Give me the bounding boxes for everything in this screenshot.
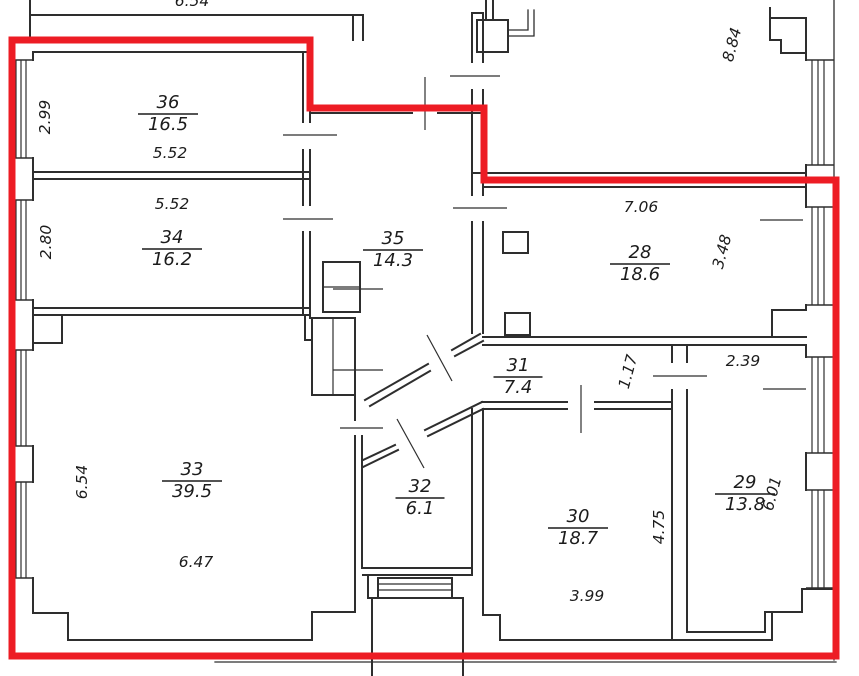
dimension-label-10: 4.75: [650, 510, 668, 545]
door-opening-tick: [397, 419, 424, 468]
dimension-label-4: 8.84: [719, 26, 745, 64]
room-number-35: 35: [382, 228, 405, 249]
dimension-label-3: 2.80: [37, 225, 55, 260]
room-area-34: 16.2: [152, 249, 192, 270]
room-number-31: 31: [507, 355, 530, 376]
room-area-32: 6.1: [406, 498, 435, 519]
door-opening-tick: [427, 335, 452, 381]
room-number-33: 33: [181, 459, 204, 480]
room-number-29: 29: [734, 472, 757, 493]
structure-box: [477, 20, 508, 52]
red-selection-outline: [12, 40, 836, 656]
wall-line: [363, 445, 395, 460]
wall-line: [455, 341, 483, 356]
room-area-35: 14.3: [373, 250, 413, 271]
wall-line: [425, 402, 482, 430]
floor-plan-svg: 3616.53416.23514.32818.6317.4326.13339.5…: [0, 0, 859, 676]
room-number-32: 32: [409, 476, 432, 497]
wall-line: [508, 10, 534, 36]
room-area-30: 18.7: [558, 528, 599, 549]
dimension-label-0: 2.99: [36, 100, 54, 135]
room-number-28: 28: [629, 242, 652, 263]
dimension-label-8: 2.39: [726, 352, 761, 370]
dimension-label-2: 5.52: [155, 195, 190, 213]
structure-box: [503, 232, 528, 253]
dimension-label-14: 6.54: [175, 0, 210, 10]
room-area-31: 7.4: [504, 377, 533, 398]
dimension-label-6: 3.48: [709, 233, 735, 271]
dimension-label-9: 6.01: [759, 475, 785, 513]
room-number-30: 30: [567, 506, 590, 527]
wall-line: [452, 334, 480, 350]
dimension-label-12: 6.47: [179, 553, 214, 571]
room-area-28: 18.6: [620, 264, 660, 285]
red-selection-outline: [12, 40, 836, 656]
structure-box: [505, 313, 530, 335]
room-number-36: 36: [157, 92, 180, 113]
room-number-34: 34: [161, 227, 184, 248]
wall-line: [508, 10, 528, 30]
room-area-33: 39.5: [172, 481, 212, 502]
dimension-label-11: 6.54: [73, 465, 91, 500]
dimension-label-1: 5.52: [153, 144, 188, 162]
dimension-label-5: 7.06: [624, 198, 659, 216]
dimension-label-7: 1.17: [615, 353, 641, 391]
wall-line: [428, 409, 483, 436]
room-area-36: 16.5: [148, 114, 188, 135]
wall-line: [370, 371, 430, 406]
dimension-label-13: 3.99: [570, 587, 605, 605]
structure-box: [378, 578, 452, 598]
floor-plan-page: 3616.53416.23514.32818.6317.4326.13339.5…: [0, 0, 859, 676]
